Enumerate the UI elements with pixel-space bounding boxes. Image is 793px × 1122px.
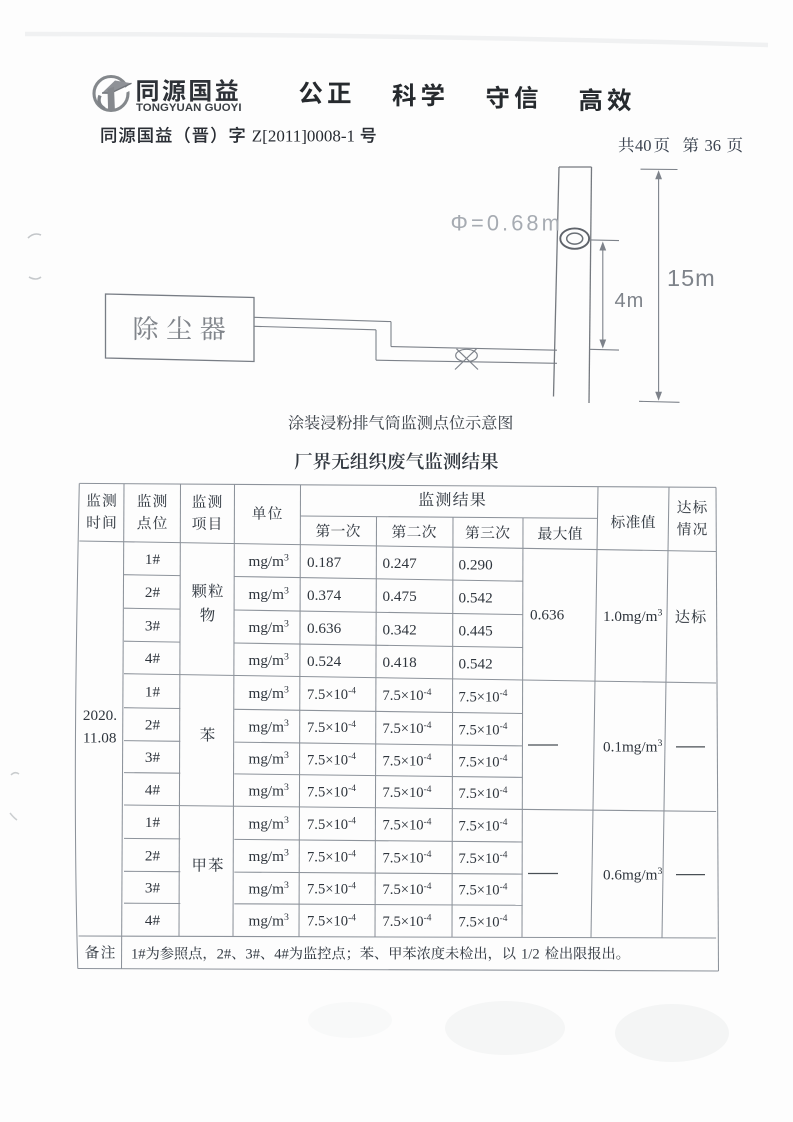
svg-text:4#: 4# — [145, 650, 161, 667]
svg-text:4m: 4m — [615, 290, 645, 312]
svg-text:1.0mg/m: 1.0mg/m — [603, 608, 658, 625]
svg-text:3: 3 — [284, 552, 289, 563]
svg-text:Φ=0.68m: Φ=0.68m — [451, 211, 563, 236]
svg-text:3: 3 — [284, 619, 289, 630]
svg-text:2#: 2# — [217, 946, 232, 962]
svg-text:mg/m: mg/m — [249, 553, 285, 570]
svg-text:3: 3 — [284, 651, 289, 662]
svg-text:3#: 3# — [145, 617, 161, 634]
svg-text:7.5×10: 7.5×10 — [383, 882, 424, 898]
svg-text:-4: -4 — [348, 881, 356, 891]
svg-text:11.08: 11.08 — [83, 730, 117, 747]
svg-text:7.5×10: 7.5×10 — [383, 850, 424, 866]
svg-text:7.5×10: 7.5×10 — [459, 883, 500, 899]
svg-text:3#: 3# — [245, 946, 260, 962]
svg-text:2#: 2# — [145, 584, 161, 601]
svg-text:3: 3 — [658, 608, 663, 619]
svg-text:7.5×10: 7.5×10 — [307, 882, 348, 898]
svg-text:-4: -4 — [500, 914, 508, 924]
svg-text:-4: -4 — [500, 754, 508, 764]
svg-text:4#: 4# — [274, 946, 289, 962]
svg-text:-4: -4 — [424, 721, 432, 731]
svg-text:-4: -4 — [500, 689, 508, 699]
svg-text:2#: 2# — [145, 717, 161, 734]
svg-text:7.5×10: 7.5×10 — [383, 721, 424, 737]
svg-text:0.418: 0.418 — [383, 654, 418, 671]
svg-text:4#: 4# — [145, 912, 161, 929]
svg-text:-4: -4 — [348, 784, 356, 794]
svg-text:0.1mg/m: 0.1mg/m — [603, 738, 658, 755]
svg-text:-4: -4 — [500, 722, 508, 732]
svg-text:7.5×10: 7.5×10 — [459, 754, 500, 770]
svg-text:0.475: 0.475 — [383, 588, 417, 605]
svg-text:-4: -4 — [424, 753, 432, 763]
svg-text:3#: 3# — [145, 749, 161, 766]
svg-text:3: 3 — [284, 750, 289, 761]
svg-text:-4: -4 — [500, 818, 508, 828]
svg-text:-4: -4 — [348, 913, 356, 923]
svg-text:-4: -4 — [500, 786, 508, 796]
svg-text:7.5×10: 7.5×10 — [459, 786, 500, 802]
svg-text:-4: -4 — [348, 849, 356, 859]
svg-text:-4: -4 — [348, 720, 356, 730]
svg-text:1/2: 1/2 — [521, 946, 540, 962]
svg-text:mg/m: mg/m — [249, 815, 285, 832]
svg-text:-4: -4 — [424, 850, 432, 860]
svg-text:2020.: 2020. — [83, 707, 117, 724]
svg-text:3: 3 — [284, 586, 289, 597]
svg-text:3: 3 — [658, 738, 663, 749]
svg-text:-4: -4 — [348, 687, 356, 697]
svg-text:36: 36 — [705, 136, 722, 155]
svg-text:0.187: 0.187 — [307, 554, 342, 571]
svg-text:-4: -4 — [424, 688, 432, 698]
svg-text:3: 3 — [284, 782, 289, 793]
svg-text:0.542: 0.542 — [459, 589, 493, 606]
svg-text:3: 3 — [284, 880, 289, 891]
svg-text:7.5×10: 7.5×10 — [459, 914, 500, 930]
svg-text:mg/m: mg/m — [249, 848, 285, 865]
svg-text:1#: 1# — [145, 683, 161, 700]
svg-text:3: 3 — [284, 848, 289, 859]
svg-text:7.5×10: 7.5×10 — [383, 688, 424, 704]
svg-text:3: 3 — [284, 815, 289, 826]
svg-text:-4: -4 — [500, 851, 508, 861]
svg-text:1#: 1# — [145, 814, 161, 831]
svg-text:mg/m: mg/m — [249, 751, 285, 768]
svg-text:-4: -4 — [348, 752, 356, 762]
svg-text:7.5×10: 7.5×10 — [459, 851, 500, 867]
svg-text:-4: -4 — [500, 882, 508, 892]
svg-text:Z[2011]0008-1: Z[2011]0008-1 — [252, 127, 355, 146]
svg-text:mg/m: mg/m — [249, 619, 285, 636]
svg-text:7.5×10: 7.5×10 — [307, 850, 348, 866]
svg-text:3: 3 — [284, 685, 289, 696]
svg-text:0.374: 0.374 — [307, 587, 342, 604]
svg-text:40: 40 — [635, 136, 652, 155]
svg-text:0.636: 0.636 — [530, 607, 565, 624]
svg-text:0.342: 0.342 — [383, 621, 417, 638]
svg-text:7.5×10: 7.5×10 — [383, 818, 424, 834]
svg-text:1#: 1# — [145, 551, 161, 568]
svg-text:7.5×10: 7.5×10 — [307, 784, 348, 800]
svg-text:0.247: 0.247 — [383, 555, 418, 572]
svg-text:7.5×10: 7.5×10 — [307, 817, 348, 833]
svg-text:-4: -4 — [424, 914, 432, 924]
svg-text:7.5×10: 7.5×10 — [307, 687, 348, 703]
svg-text:mg/m: mg/m — [249, 718, 285, 735]
svg-text:7.5×10: 7.5×10 — [459, 819, 500, 835]
svg-text:-4: -4 — [424, 817, 432, 827]
svg-text:7.5×10: 7.5×10 — [383, 785, 424, 801]
svg-text:3#: 3# — [145, 880, 161, 897]
svg-text:mg/m: mg/m — [249, 880, 285, 897]
svg-text:0.542: 0.542 — [459, 655, 493, 672]
svg-text:3: 3 — [284, 718, 289, 729]
svg-text:0.6mg/m: 0.6mg/m — [603, 866, 658, 883]
svg-text:0.290: 0.290 — [459, 556, 494, 573]
svg-text:-4: -4 — [348, 817, 356, 827]
svg-text:mg/m: mg/m — [249, 783, 285, 800]
svg-text:3: 3 — [284, 912, 289, 923]
svg-text:7.5×10: 7.5×10 — [383, 753, 424, 769]
svg-text:7.5×10: 7.5×10 — [307, 720, 348, 736]
svg-text:mg/m: mg/m — [249, 586, 285, 603]
svg-text:7.5×10: 7.5×10 — [307, 914, 348, 930]
svg-text:7.5×10: 7.5×10 — [383, 914, 424, 930]
svg-text:mg/m: mg/m — [249, 685, 285, 702]
svg-text:0.636: 0.636 — [307, 620, 342, 637]
svg-text:mg/m: mg/m — [249, 913, 285, 930]
svg-text:mg/m: mg/m — [249, 652, 285, 669]
svg-text:0.445: 0.445 — [459, 623, 493, 640]
svg-text:7.5×10: 7.5×10 — [459, 722, 500, 738]
svg-text:4#: 4# — [145, 781, 161, 798]
svg-text:-4: -4 — [424, 882, 432, 892]
svg-text:7.5×10: 7.5×10 — [307, 752, 348, 768]
svg-text:-4: -4 — [424, 785, 432, 795]
svg-text:15m: 15m — [667, 265, 716, 291]
svg-text:TONGYUAN GUOYI: TONGYUAN GUOYI — [136, 102, 242, 114]
svg-text:7.5×10: 7.5×10 — [459, 689, 500, 705]
svg-text:0.524: 0.524 — [307, 653, 342, 670]
svg-text:2#: 2# — [145, 847, 161, 864]
svg-text:3: 3 — [658, 866, 663, 877]
svg-text:1#: 1# — [131, 946, 146, 962]
